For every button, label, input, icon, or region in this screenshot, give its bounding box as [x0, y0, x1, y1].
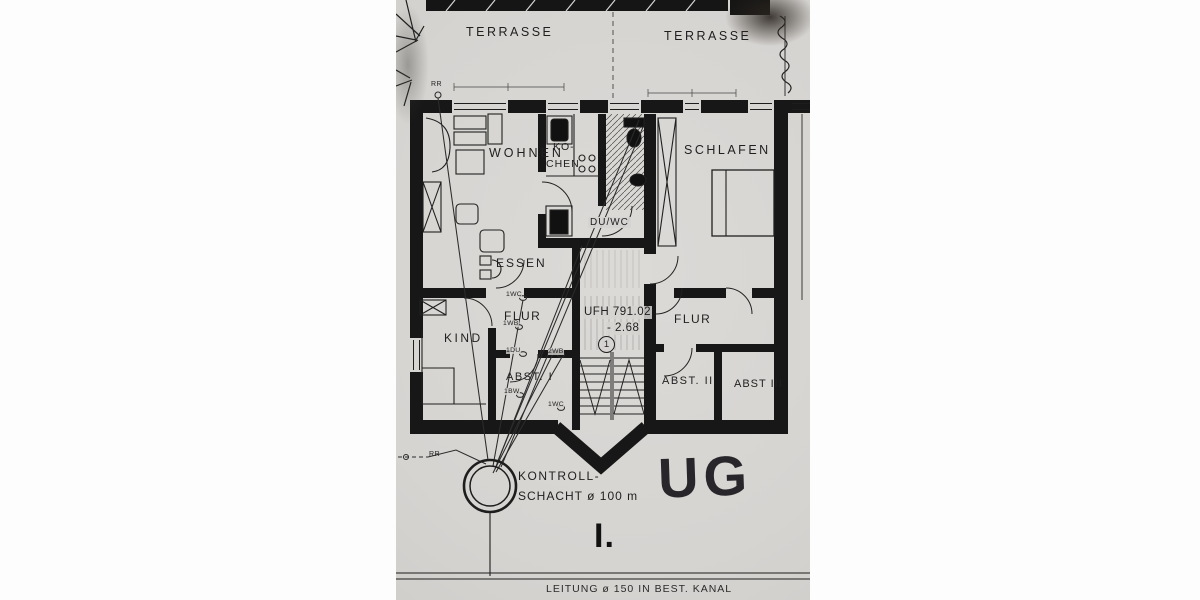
screenshot: TERRASSE TERRASSE WOHNEN KO- CHEN SCHLAF… — [0, 0, 1200, 600]
hedge-sketch — [778, 16, 791, 96]
fixture-tag-wb-double: 2WB — [548, 348, 564, 355]
staircase — [580, 352, 644, 420]
fixture-tag-du: 1DU — [506, 347, 521, 354]
sheet-number: I. — [594, 518, 615, 555]
shaft-note-line1: KONTROLL- — [518, 470, 600, 483]
handwritten-floor-mark: UG — [657, 444, 753, 509]
room-label-abst-3: ABST III — [734, 378, 783, 390]
footer-pipe-note: LEITUNG ø 150 IN BEST. KANAL — [546, 584, 732, 596]
stair-number-mark: 1 — [598, 336, 615, 353]
fixture-tag-rr-top: RR — [431, 81, 442, 89]
tree-sketch — [396, 0, 424, 106]
level-annotation-ufh: UFH 791.02 — [583, 306, 652, 319]
room-label-kind: KIND — [444, 332, 483, 345]
fixture-tag-wc-upper: 1WC — [506, 291, 522, 298]
fixture-tag-wb-upper: 1WB — [503, 320, 519, 327]
floorplan-photo: TERRASSE TERRASSE WOHNEN KO- CHEN SCHLAF… — [396, 0, 810, 600]
room-label-kueche-2: CHEN — [546, 159, 580, 171]
floorplan-drawing — [396, 0, 810, 600]
room-label-schlafen: SCHLAFEN — [684, 144, 771, 158]
bath-floor-hatch — [606, 114, 646, 210]
room-label-flur-right: FLUR — [674, 313, 711, 326]
fixture-tag-rr-bottom: RR — [429, 451, 440, 459]
room-label-abst-2: ABST. II — [662, 375, 714, 387]
room-label-abst-1: ABST. I — [506, 371, 553, 383]
fixture-tag-bw: 1BW — [504, 388, 520, 395]
room-label-terrasse-left: TERRASSE — [466, 26, 553, 40]
top-building-band — [426, 0, 770, 15]
room-label-du-wc: DU/WC — [588, 217, 631, 228]
shaft-note-line2: SCHACHT ø 100 m — [518, 490, 638, 503]
room-label-kueche-1: KO- — [553, 142, 575, 154]
room-label-essen: ESSEN — [496, 257, 547, 270]
level-annotation-depth: - 2.68 — [606, 322, 640, 335]
room-label-terrasse-right: TERRASSE — [664, 30, 751, 44]
fixture-tag-wc-lower: 1WC — [548, 401, 564, 408]
